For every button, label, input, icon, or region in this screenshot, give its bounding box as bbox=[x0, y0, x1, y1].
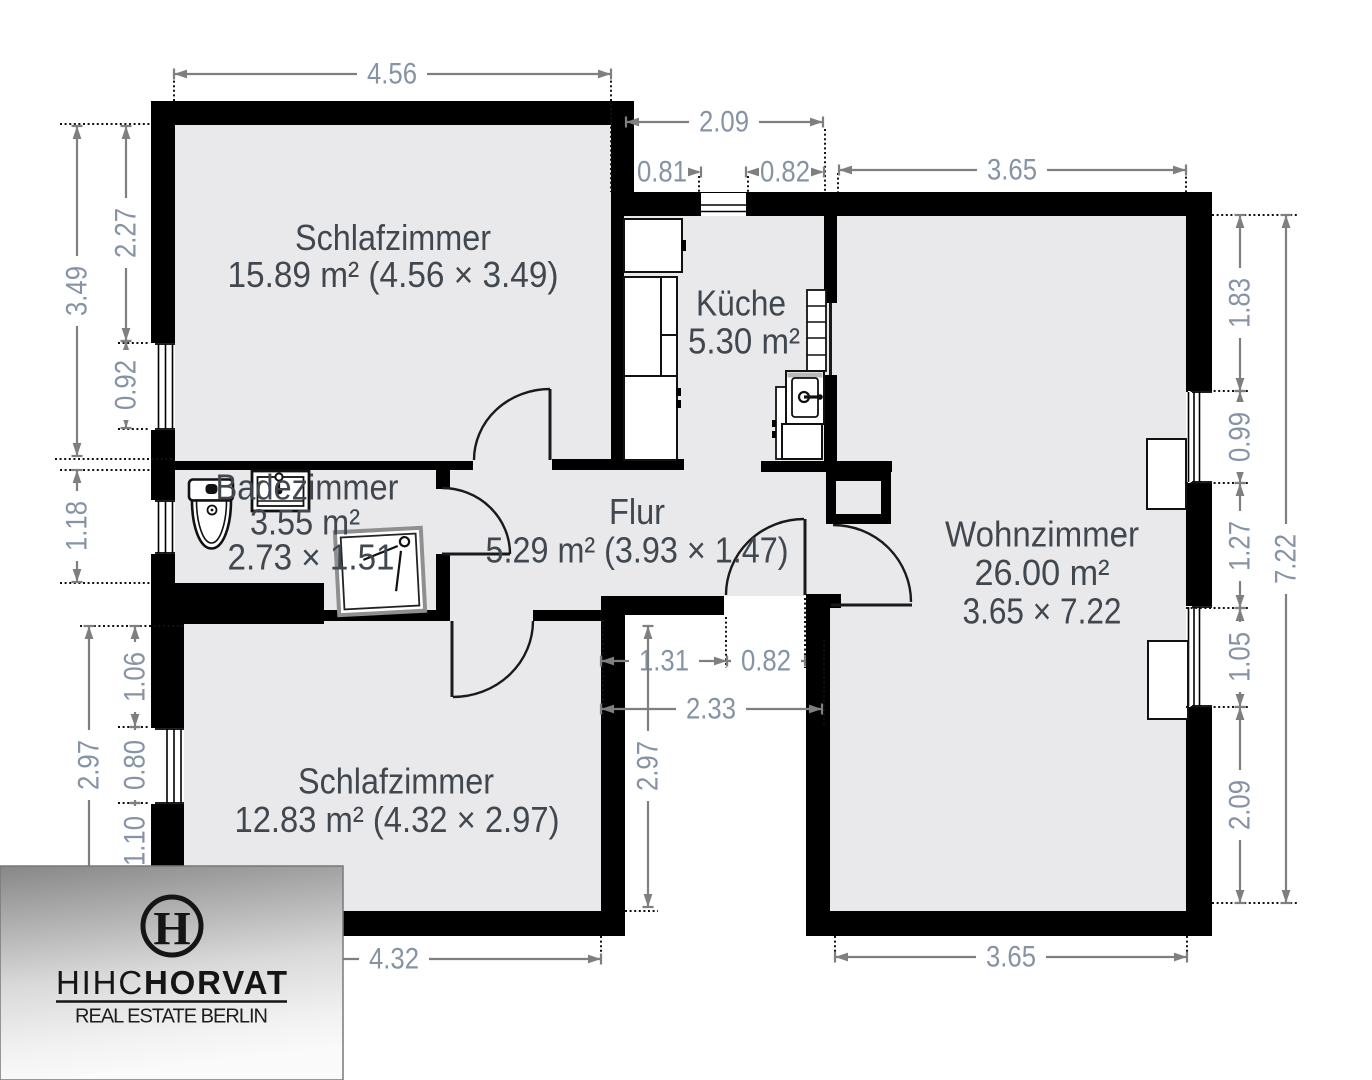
svg-text:3.65 × 7.22: 3.65 × 7.22 bbox=[963, 591, 1122, 632]
svg-text:2.33: 2.33 bbox=[686, 693, 736, 726]
svg-text:1.18: 1.18 bbox=[61, 501, 94, 551]
svg-text:4.32: 4.32 bbox=[369, 943, 419, 976]
svg-text:H: H bbox=[153, 903, 190, 956]
svg-text:3.65: 3.65 bbox=[987, 154, 1037, 187]
svg-text:2.73 × 1.51: 2.73 × 1.51 bbox=[228, 537, 395, 578]
svg-text:0.92: 0.92 bbox=[110, 360, 143, 410]
svg-text:0.82: 0.82 bbox=[760, 156, 810, 189]
svg-text:Flur: Flur bbox=[609, 491, 665, 532]
svg-text:12.83 m² (4.32 × 2.97): 12.83 m² (4.32 × 2.97) bbox=[235, 799, 560, 840]
svg-text:2.27: 2.27 bbox=[110, 208, 143, 258]
svg-text:2.97: 2.97 bbox=[632, 741, 665, 791]
svg-text:1.05: 1.05 bbox=[1224, 632, 1257, 682]
svg-text:2.09: 2.09 bbox=[1224, 780, 1257, 830]
svg-text:0.80: 0.80 bbox=[119, 740, 152, 790]
svg-text:3.49: 3.49 bbox=[61, 266, 94, 316]
svg-text:1.27: 1.27 bbox=[1224, 521, 1257, 571]
svg-text:5.29 m² (3.93 × 1.47): 5.29 m² (3.93 × 1.47) bbox=[486, 530, 789, 571]
svg-text:REAL ESTATE BERLIN: REAL ESTATE BERLIN bbox=[75, 1006, 268, 1028]
svg-text:1.06: 1.06 bbox=[119, 652, 152, 702]
svg-text:1.31: 1.31 bbox=[639, 645, 689, 678]
svg-text:1.10: 1.10 bbox=[119, 816, 152, 866]
svg-text:0.99: 0.99 bbox=[1224, 412, 1257, 462]
svg-text:26.00 m²: 26.00 m² bbox=[975, 552, 1110, 593]
svg-text:3.65: 3.65 bbox=[986, 941, 1036, 974]
svg-text:4.56: 4.56 bbox=[367, 58, 417, 91]
svg-text:0.81: 0.81 bbox=[637, 156, 687, 189]
svg-text:7.22: 7.22 bbox=[1270, 534, 1303, 584]
svg-text:2.97: 2.97 bbox=[73, 740, 106, 790]
svg-text:Küche: Küche bbox=[696, 283, 786, 324]
svg-text:HIHCHORVAT: HIHCHORVAT bbox=[56, 964, 287, 1001]
svg-text:Schlafzimmer: Schlafzimmer bbox=[295, 217, 491, 258]
svg-text:1.83: 1.83 bbox=[1224, 278, 1257, 328]
svg-text:Wohnzimmer: Wohnzimmer bbox=[945, 514, 1139, 555]
svg-text:5.30 m²: 5.30 m² bbox=[688, 321, 800, 362]
svg-text:0.82: 0.82 bbox=[741, 645, 791, 678]
svg-text:2.09: 2.09 bbox=[699, 106, 749, 139]
svg-text:Schlafzimmer: Schlafzimmer bbox=[298, 761, 494, 802]
svg-text:15.89 m² (4.56 × 3.49): 15.89 m² (4.56 × 3.49) bbox=[228, 254, 559, 295]
